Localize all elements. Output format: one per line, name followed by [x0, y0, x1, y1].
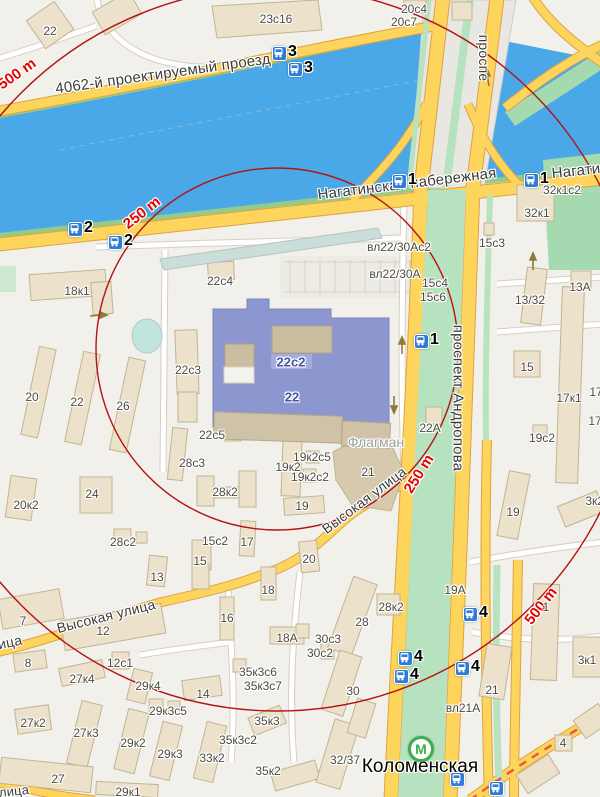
bus-icon: [464, 608, 475, 619]
bus-stop-number: 4: [410, 666, 419, 684]
building-label: 28к2: [378, 600, 403, 614]
bus-stop-icon[interactable]: [524, 173, 539, 188]
building-label: 33к2: [199, 751, 224, 765]
building-label: 35к3с2: [219, 733, 257, 747]
building-label: 30: [346, 684, 359, 698]
inner-court: [224, 367, 254, 383]
building-extrusion: [214, 412, 343, 443]
building-label: 13А: [569, 280, 590, 294]
highlight-building-label: 22: [285, 390, 299, 405]
building-label: 19к2с2: [291, 470, 329, 484]
building-label: 8: [25, 656, 32, 670]
bus-stop-number: 1: [430, 331, 439, 349]
bus-stop-icon[interactable]: [272, 46, 287, 61]
building-label: 15с2: [202, 534, 228, 548]
bus-stop-number: 4: [479, 604, 488, 622]
bus-stop-icon[interactable]: [68, 222, 83, 237]
poi-label: Флагман: [348, 434, 404, 450]
building-label: 35к3с7: [244, 679, 282, 693]
bus-stop-icon[interactable]: [455, 661, 470, 676]
building-label: 15: [193, 554, 206, 568]
bus-icon: [109, 236, 120, 247]
bus-icon: [415, 335, 426, 346]
building-label: 20с4: [401, 2, 427, 16]
building-label: 18к1: [64, 284, 89, 298]
green-patch: [0, 266, 16, 292]
pond: [132, 319, 162, 353]
map-viewport[interactable]: 4062-й проектируемый проездНагатинская н…: [0, 0, 600, 797]
bus-stop-icon[interactable]: [414, 334, 429, 349]
building-label: 22: [43, 24, 56, 38]
building-label: 28: [355, 615, 368, 629]
building-label: 19А: [444, 583, 465, 597]
building-label: 15с6: [420, 290, 446, 304]
building-label: 12: [96, 624, 109, 638]
building-label: 19с2: [529, 431, 555, 445]
bus-icon: [456, 662, 467, 673]
building-label: 30с3: [315, 632, 341, 646]
bus-icon: [289, 63, 300, 74]
inner-building: [225, 344, 254, 368]
bus-icon: [490, 782, 501, 793]
highlight-building-label: 22с2: [277, 355, 306, 370]
metro-logo-letter: М: [415, 742, 427, 756]
building-label: 3к2с1: [585, 494, 600, 508]
building-label: 29к4: [135, 679, 160, 693]
street-label: проспе: [476, 35, 492, 82]
building-label: вл22/30Ас2: [367, 240, 431, 254]
building-label: 20к2: [13, 498, 38, 512]
building-label: 27к4: [69, 672, 94, 686]
bus-stop-icon[interactable]: [450, 772, 465, 787]
building-label: 27к2: [20, 716, 45, 730]
building-label: 19: [295, 499, 308, 513]
bus-stop-number: 4: [414, 648, 423, 666]
building-label: 18: [261, 583, 274, 597]
building-label: 17к1: [556, 391, 581, 405]
building-label: 29к3с5: [149, 704, 187, 718]
bus-stop-number: 4: [471, 658, 480, 676]
bus-stop-number: 3: [288, 43, 297, 61]
building-label: 28с3: [179, 456, 205, 470]
street-label: лица: [0, 782, 30, 797]
bus-icon: [395, 670, 406, 681]
building-label: 35к3с6: [239, 665, 277, 679]
building-label: 22: [70, 395, 83, 409]
building-label: 22А: [419, 421, 440, 435]
building-label: 13: [150, 570, 163, 584]
building-label: 19: [506, 505, 519, 519]
building-label: 22с4: [207, 274, 233, 288]
bus-stop-number: 1: [540, 170, 549, 188]
bus-icon: [399, 652, 410, 663]
building-label: 17к2: [589, 385, 600, 399]
building-label: 16: [220, 611, 233, 625]
building-label: 27к3: [73, 726, 98, 740]
bus-icon: [273, 47, 284, 58]
bus-icon: [393, 175, 404, 186]
building-label: 12с1: [107, 656, 133, 670]
inner-building: [272, 326, 332, 353]
building-label: 29к3: [157, 747, 182, 761]
building-label: 18А: [276, 631, 297, 645]
building-label: вл22/30А: [369, 267, 420, 281]
building-label: 4: [560, 736, 567, 750]
building-label: 15: [520, 360, 533, 374]
building-label: 13/32: [515, 293, 545, 307]
building-label: 35к2: [255, 764, 280, 778]
building-label: 17: [240, 535, 253, 549]
building-label: 22с5: [199, 428, 225, 442]
building-label: 17: [588, 414, 600, 428]
bus-stop-icon[interactable]: [489, 781, 504, 796]
building-label: 32к1: [524, 206, 549, 220]
building-label: 20с7: [391, 15, 417, 29]
building-label: 7: [20, 614, 27, 628]
bus-stop-icon[interactable]: [392, 174, 407, 189]
bus-icon: [451, 773, 462, 784]
bus-stop-icon[interactable]: [288, 62, 303, 77]
building-label: 32/37: [330, 753, 360, 767]
building-label: 27: [51, 772, 64, 786]
bus-icon: [69, 223, 80, 234]
building-label: 23с16: [260, 12, 293, 26]
building-label: 30с2: [307, 646, 333, 660]
bus-stop-icon[interactable]: [394, 669, 409, 684]
bus-stop-icon[interactable]: [108, 235, 123, 250]
building-label: вл21А: [446, 701, 480, 715]
building-label: 22с3: [175, 363, 201, 377]
building-label: 20: [302, 552, 315, 566]
building-label: 28к2: [212, 485, 237, 499]
bus-stop-number: 3: [304, 59, 313, 77]
building-label: 24: [85, 487, 98, 501]
building-label: 28с2: [110, 535, 136, 549]
building-label: 35к3: [254, 714, 279, 728]
building-label: 21: [361, 465, 374, 479]
building-label: 29к2: [120, 736, 145, 750]
building-label: 21: [485, 683, 498, 697]
bus-stop-icon[interactable]: [463, 607, 478, 622]
building-label: 15с4: [422, 276, 448, 290]
metro-station-icon[interactable]: М: [408, 736, 434, 762]
bus-icon: [525, 174, 536, 185]
building-label: 3к1: [578, 653, 597, 667]
highlighted-building[interactable]: [213, 299, 391, 448]
building-label: 14: [196, 687, 209, 701]
building-label: 15с3: [479, 236, 505, 250]
building-label: 29к1: [115, 785, 140, 797]
building-label: 20: [25, 390, 38, 404]
street-label: проспект Андропова: [450, 325, 467, 471]
bus-stop-number: 2: [84, 219, 93, 237]
bus-stop-icon[interactable]: [398, 651, 413, 666]
building-label: 26: [116, 399, 129, 413]
bus-stop-number: 1: [408, 171, 417, 189]
bus-stop-number: 2: [124, 232, 133, 250]
building-label: 1: [543, 600, 550, 614]
